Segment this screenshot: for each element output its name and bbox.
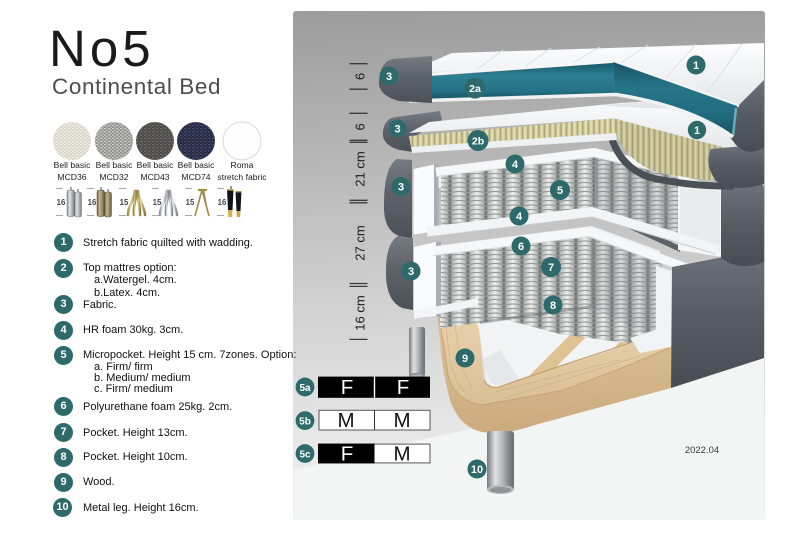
svg-text:7: 7	[548, 262, 554, 274]
svg-text:6: 6	[353, 73, 368, 80]
svg-text:2b: 2b	[472, 136, 484, 148]
svg-text:F: F	[397, 376, 410, 399]
svg-text:27 cm: 27 cm	[353, 225, 368, 260]
svg-text:3: 3	[386, 71, 392, 83]
svg-text:F: F	[341, 376, 354, 399]
svg-text:M: M	[337, 409, 354, 432]
svg-text:8: 8	[550, 300, 556, 312]
svg-text:5a: 5a	[299, 383, 311, 394]
svg-text:5b: 5b	[299, 416, 311, 427]
svg-text:1: 1	[693, 60, 699, 72]
svg-text:16 cm: 16 cm	[353, 295, 368, 330]
svg-text:3: 3	[394, 124, 400, 136]
svg-text:6: 6	[518, 241, 524, 253]
svg-text:2022.04: 2022.04	[685, 445, 719, 456]
svg-text:5c: 5c	[299, 449, 311, 460]
svg-text:21 cm: 21 cm	[353, 151, 368, 186]
svg-text:4: 4	[516, 211, 523, 223]
svg-text:10: 10	[471, 464, 483, 476]
svg-text:9: 9	[462, 353, 468, 365]
svg-text:1: 1	[694, 125, 700, 137]
svg-text:4: 4	[512, 159, 519, 171]
svg-text:M: M	[393, 409, 410, 432]
svg-text:3: 3	[398, 182, 404, 194]
svg-text:F: F	[341, 442, 354, 465]
svg-text:M: M	[393, 442, 410, 465]
svg-text:6: 6	[353, 123, 368, 130]
svg-text:5: 5	[557, 185, 563, 197]
svg-text:2a: 2a	[469, 83, 481, 95]
svg-text:3: 3	[408, 266, 414, 278]
